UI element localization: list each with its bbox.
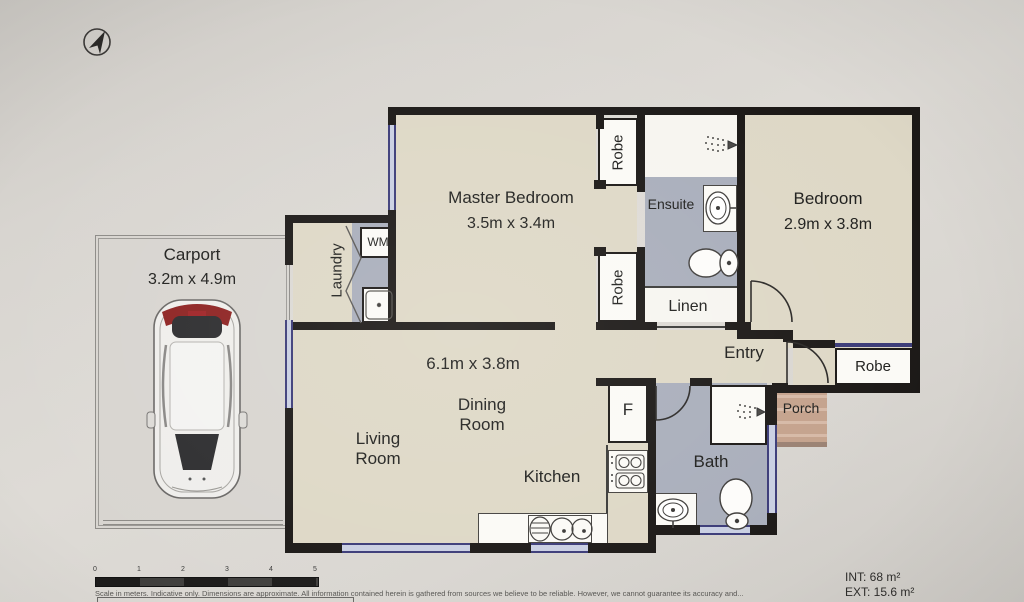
car-top-view [147,300,247,498]
internal-area: INT: 68 m² [845,570,955,584]
bedroom-door [751,281,792,322]
scale-tick-0: 0 [90,566,100,574]
entry-label: Entry [709,343,779,363]
floor-plan-photo: Carport 3.2m x 4.9m Master Bedroom 3.5m … [0,0,1024,602]
ensuite-basin [706,192,737,224]
carport-dims: 3.2m x 4.9m [127,270,257,289]
ensuite-shower-head-icon [705,136,737,152]
scale-bar-rule [95,577,319,587]
dining-room-label: Dining Room [437,395,527,436]
external-area: EXT: 15.6 m² [845,585,955,599]
kitchen-label: Kitchen [502,467,602,487]
scale-tick-5: 5 [310,566,320,574]
master-bedroom-label: Master Bedroom [421,188,601,208]
living-area-dims: 6.1m x 3.8m [403,354,543,374]
entry-door [787,342,828,383]
laundry-tub [366,291,392,319]
master-bedroom-dims: 3.5m x 3.4m [436,214,586,233]
linen-label: Linen [653,297,723,316]
bath-label: Bath [681,452,741,472]
scale-tick-2: 2 [178,566,188,574]
bath-basin [658,499,688,528]
ensuite-label: Ensuite [636,196,706,213]
scale-tick-4: 4 [266,566,276,574]
stove-burners [611,455,644,488]
porch-label: Porch [771,400,831,417]
living-room-label: Living Room [348,429,408,470]
scale-tick-3: 3 [222,566,232,574]
bedroom-label: Bedroom [768,189,888,209]
scale-tick-1: 1 [134,566,144,574]
fridge-label: F [608,400,648,420]
laundry-bifold-door [346,226,361,323]
robe-master-bottom-label: Robe [610,253,627,323]
plan-linework [0,0,1024,602]
carport-label: Carport [132,245,252,265]
robe-master-top-label: Robe [610,118,627,188]
legend-box-partial [97,597,354,602]
bedroom-dims: 2.9m x 3.8m [758,215,898,234]
bath-shower-head-icon [737,404,765,419]
ensuite-toilet [689,249,738,277]
robe-bedroom-label: Robe [838,358,908,376]
north-arrow-icon [84,29,110,55]
kitchen-sink-bowls [530,517,592,541]
laundry-label: Laundry [329,231,346,311]
bath-toilet [720,479,752,529]
bath-door [656,386,690,420]
washing-machine-label: WM [360,235,396,249]
